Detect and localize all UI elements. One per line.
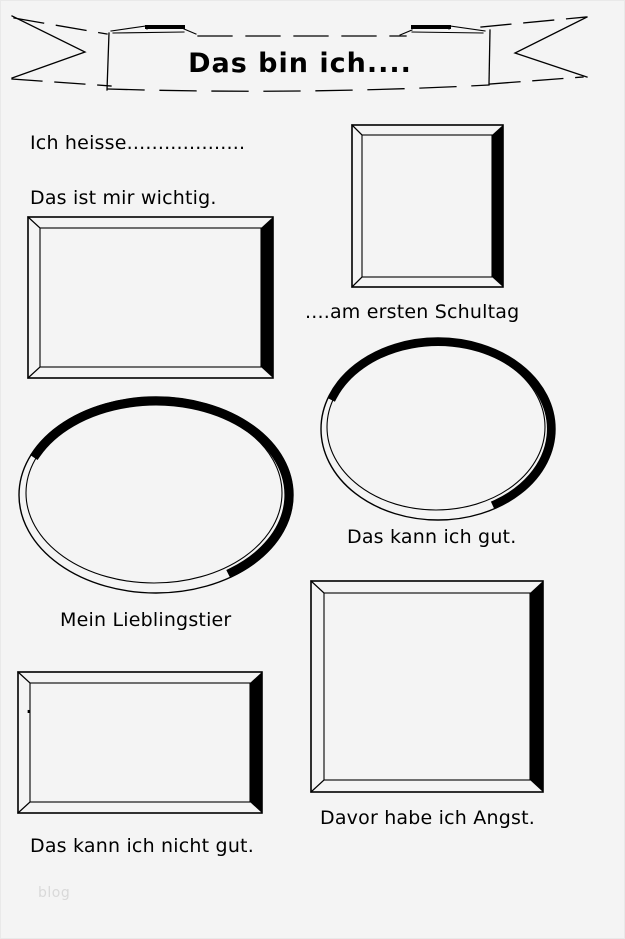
banner-panel-left-edge (107, 33, 109, 90)
label-favorite-animal: Mein Lieblingstier (60, 608, 231, 632)
photo-frame-wichtig (28, 217, 273, 378)
banner-left-dash-top (14, 18, 107, 34)
label-afraid-of: Davor habe ich Angst. (320, 806, 535, 830)
label-first-school-day: ....am ersten Schultag (305, 300, 519, 324)
watermark-blog: blog (38, 885, 70, 901)
banner-left-fold (111, 26, 196, 34)
banner-right-dash-bottom (490, 77, 583, 84)
banner-left-dash-bottom (12, 79, 111, 86)
label-name-line: Ich heisse................... (30, 131, 245, 155)
label-good-at: Das kann ich gut. (347, 525, 516, 549)
photo-oval-lieblingstier (19, 397, 293, 593)
label-not-good-at: Das kann ich nicht gut. (30, 834, 254, 858)
banner-right-fold (400, 26, 485, 35)
banner-right-tail (515, 17, 587, 77)
photo-frame-schultag (352, 125, 503, 287)
banner-panel-bottom-dashed (108, 85, 489, 91)
page-title: Das bin ich.... (110, 48, 490, 79)
frame-period-mark: . (26, 698, 32, 717)
banner-left-tail (12, 16, 85, 78)
photo-oval-kann-ich-gut (321, 338, 555, 520)
label-important: Das ist mir wichtig. (30, 186, 217, 210)
photo-frame-angst (311, 581, 543, 792)
photo-frame-nicht-gut (18, 672, 262, 813)
worksheet-page: Das bin ich.... Ich heisse..............… (0, 0, 625, 939)
